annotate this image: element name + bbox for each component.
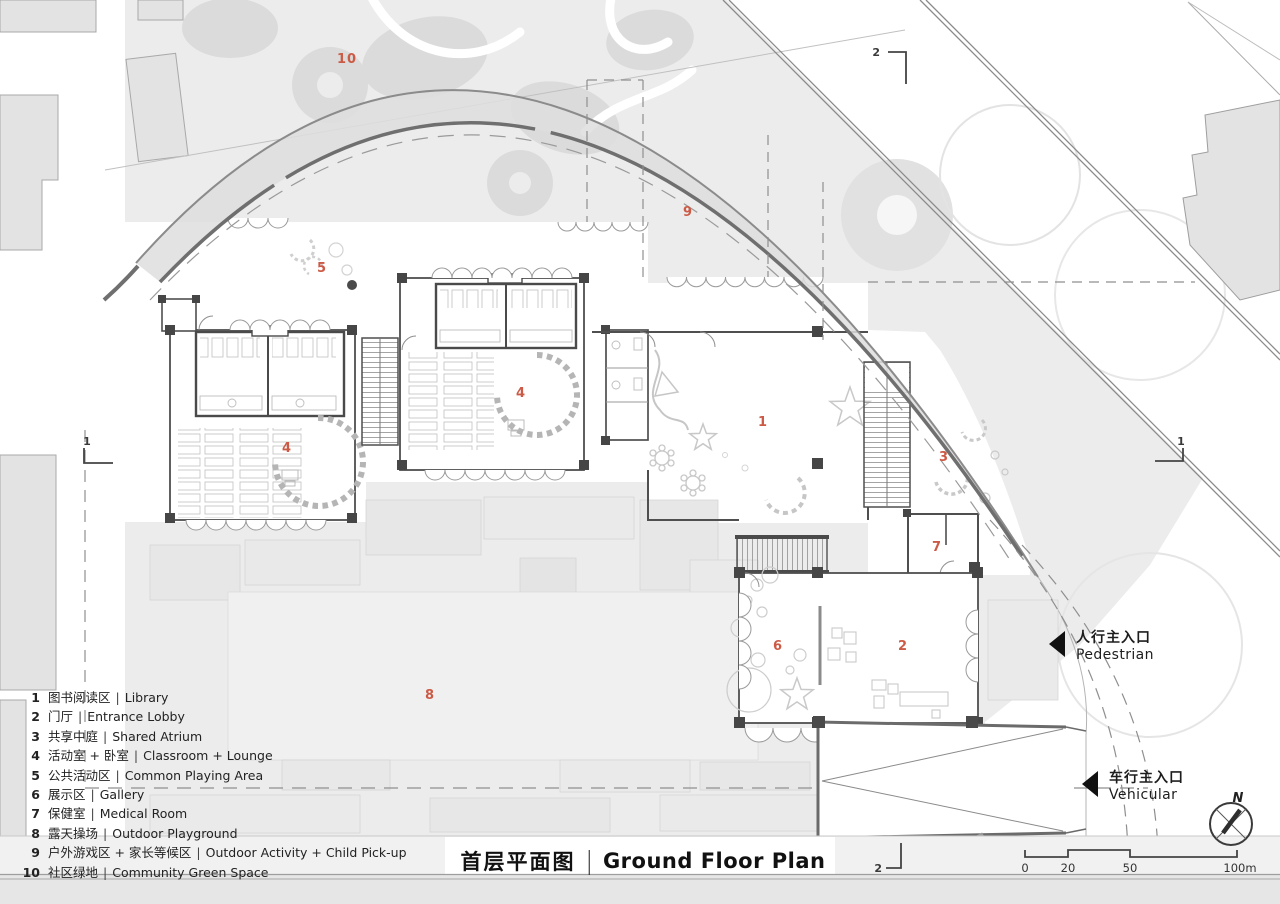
legend: 1图书阅读区|Library 2门厅|Entrance Lobby 3共享中庭|…	[22, 688, 407, 882]
drawing-title-divider: |	[586, 847, 593, 876]
legend-item-6: 6展示区|Gallery	[22, 785, 407, 804]
stair-core-right	[864, 362, 910, 507]
legend-num: 7	[22, 804, 40, 823]
legend-zh: 活动室 + 卧室	[48, 746, 129, 765]
floor-plan-sheet: 10 9 5 4 1 4 3 7 6 2 8 2 2 1 1 人行主入口 Ped…	[0, 0, 1280, 904]
legend-num: 9	[22, 843, 40, 862]
section-marker-bottom-label: 2	[874, 862, 882, 875]
legend-num: 5	[22, 766, 40, 785]
legend-item-10: 10社区绿地|Community Green Space	[22, 863, 407, 882]
legend-en: Outdoor Activity + Child Pick-up	[206, 843, 407, 862]
area-label-2: 2	[898, 639, 908, 654]
legend-num: 1	[22, 688, 40, 707]
legend-en: Library	[125, 688, 169, 707]
pedestrian-label-en: Pedestrian	[1076, 647, 1154, 663]
legend-num: 10	[22, 863, 40, 882]
stair-core-left	[362, 338, 398, 445]
legend-zh: 共享中庭	[48, 727, 98, 746]
area-label-7: 7	[932, 540, 942, 555]
legend-en: Entrance Lobby	[87, 707, 185, 726]
pedestrian-label-zh: 人行主入口	[1076, 629, 1151, 646]
legend-en: Common Playing Area	[125, 766, 263, 785]
legend-en: Shared Atrium	[112, 727, 202, 746]
drawing-title-zh: 首层平面图	[461, 846, 576, 876]
legend-num: 2	[22, 707, 40, 726]
legend-en: Classroom + Lounge	[143, 746, 273, 765]
legend-zh: 社区绿地	[48, 863, 98, 882]
wc-block	[601, 325, 648, 445]
area-label-6: 6	[773, 639, 783, 654]
legend-zh: 门厅	[48, 707, 73, 726]
legend-zh: 露天操场	[48, 824, 98, 843]
legend-en: Outdoor Playground	[112, 824, 237, 843]
legend-separator: |	[116, 688, 120, 707]
legend-en: Gallery	[100, 785, 145, 804]
legend-num: 6	[22, 785, 40, 804]
scale-tick-50: 50	[1123, 861, 1138, 875]
area-label-10: 10	[337, 52, 357, 67]
vehicular-label-en: Vehicular	[1109, 787, 1177, 803]
legend-zh: 展示区	[48, 785, 86, 804]
drawing-title-en: Ground Floor Plan	[603, 849, 826, 873]
area-label-4a: 4	[282, 441, 292, 456]
vehicular-label-zh: 车行主入口	[1109, 769, 1184, 786]
scale-tick-100: 100m	[1223, 861, 1256, 875]
compass-north-label: N	[1233, 791, 1244, 806]
legend-separator: |	[103, 727, 107, 746]
area-label-5: 5	[317, 261, 327, 276]
legend-en: Community Green Space	[112, 863, 268, 882]
legend-zh: 图书阅读区	[48, 688, 111, 707]
drawing-title: 首层平面图 | Ground Floor Plan	[443, 846, 843, 876]
legend-en: Medical Room	[100, 804, 187, 823]
legend-zh: 公共活动区	[48, 766, 111, 785]
area-label-4b: 4	[516, 386, 526, 401]
scale-tick-20: 20	[1061, 861, 1076, 875]
legend-separator: |	[78, 707, 82, 726]
legend-item-4: 4活动室 + 卧室|Classroom + Lounge	[22, 746, 407, 765]
legend-zh: 户外游戏区 + 家长等候区	[48, 843, 191, 862]
legend-item-3: 3共享中庭|Shared Atrium	[22, 727, 407, 746]
area-label-3: 3	[939, 450, 949, 465]
legend-separator: |	[91, 804, 95, 823]
legend-item-1: 1图书阅读区|Library	[22, 688, 407, 707]
legend-num: 4	[22, 746, 40, 765]
legend-separator: |	[134, 746, 138, 765]
legend-num: 8	[22, 824, 40, 843]
legend-separator: |	[91, 785, 95, 804]
legend-item-5: 5公共活动区|Common Playing Area	[22, 766, 407, 785]
legend-item-8: 8露天操场|Outdoor Playground	[22, 824, 407, 843]
legend-item-7: 7保健室|Medical Room	[22, 804, 407, 823]
classroom-block-b	[397, 273, 589, 470]
legend-separator: |	[116, 766, 120, 785]
section-marker-top-label: 2	[872, 46, 880, 59]
area-label-9: 9	[683, 205, 693, 220]
legend-num: 3	[22, 727, 40, 746]
legend-separator: |	[103, 824, 107, 843]
section-marker-right-label: 1	[1177, 435, 1185, 448]
section-marker-left-label: 1	[83, 435, 91, 448]
gallery-lobby-block	[727, 567, 983, 728]
legend-item-9: 9户外游戏区 + 家长等候区|Outdoor Activity + Child …	[22, 843, 407, 862]
legend-separator: |	[196, 843, 200, 862]
area-label-8: 8	[425, 688, 435, 703]
legend-zh: 保健室	[48, 804, 86, 823]
legend-separator: |	[103, 863, 107, 882]
scale-tick-0: 0	[1021, 861, 1028, 875]
legend-item-2: 2门厅|Entrance Lobby	[22, 707, 407, 726]
area-label-1: 1	[758, 415, 768, 430]
